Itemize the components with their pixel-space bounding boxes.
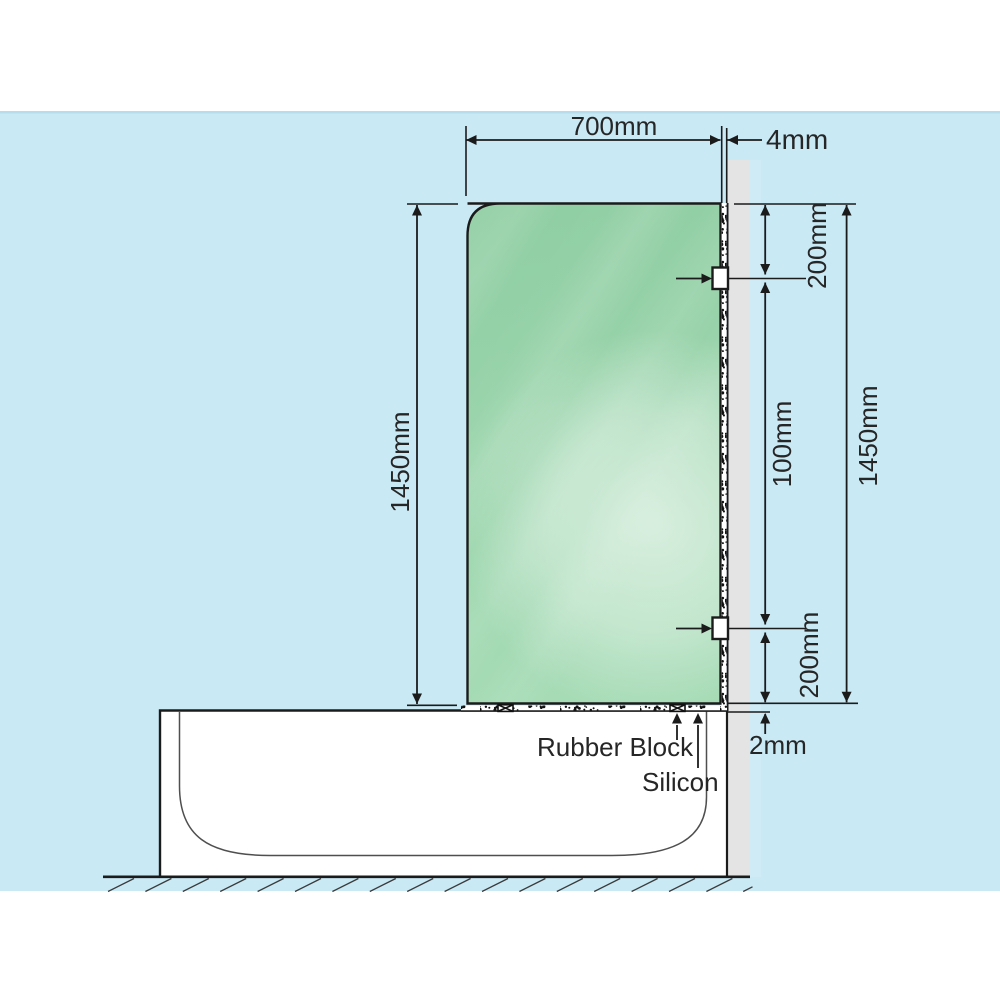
svg-text:700mm: 700mm	[571, 111, 658, 141]
svg-text:1450mm: 1450mm	[853, 385, 883, 486]
svg-text:100mm: 100mm	[767, 401, 797, 488]
svg-text:200mm: 200mm	[802, 202, 832, 289]
svg-text:2mm: 2mm	[749, 730, 807, 760]
svg-text:Rubber Block: Rubber Block	[537, 732, 694, 762]
svg-text:4mm: 4mm	[766, 124, 828, 155]
svg-text:200mm: 200mm	[794, 612, 824, 699]
svg-text:Silicon: Silicon	[642, 767, 719, 797]
svg-text:1450mm: 1450mm	[385, 411, 415, 512]
